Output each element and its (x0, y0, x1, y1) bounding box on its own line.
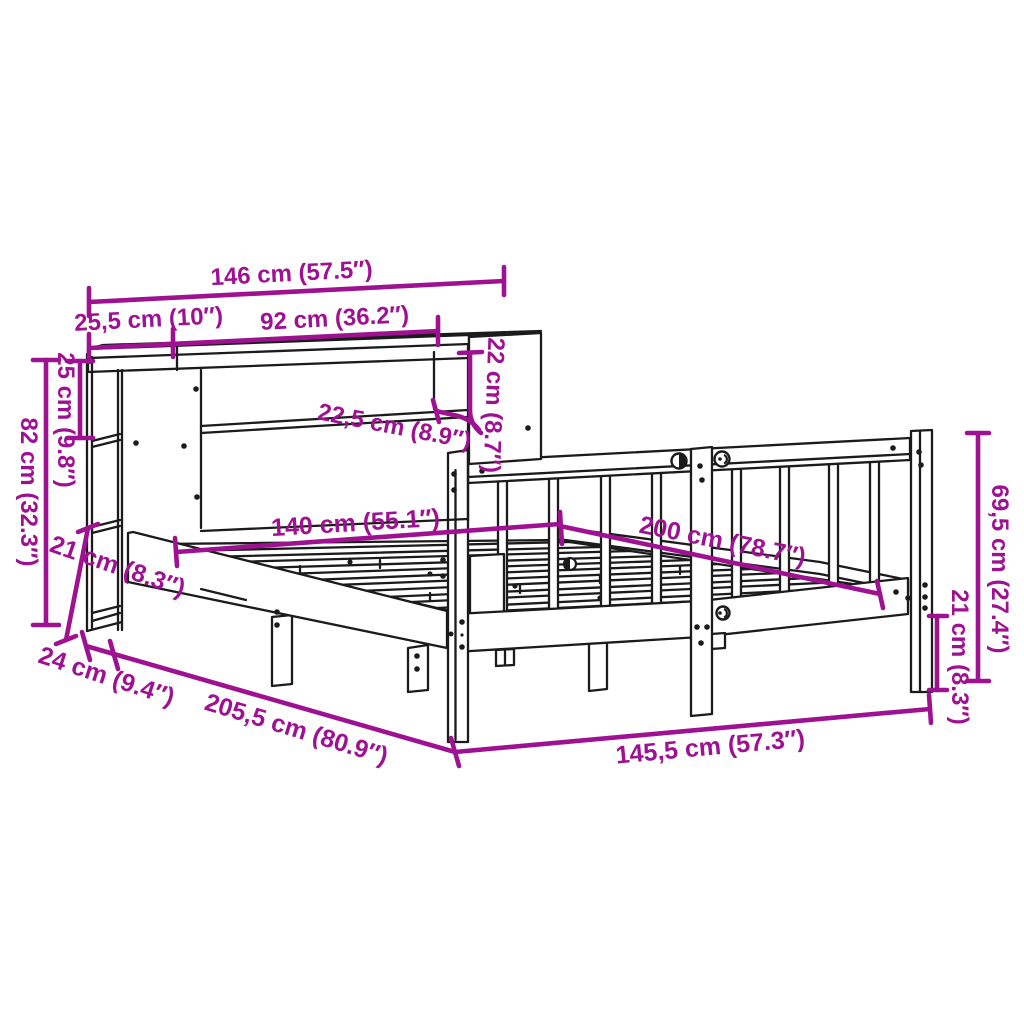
svg-text:25 cm (9.8″): 25 cm (9.8″) (52, 352, 79, 488)
svg-text:69,5 cm (27.4″): 69,5 cm (27.4″) (986, 485, 1013, 654)
svg-text:82 cm (32.3″): 82 cm (32.3″) (15, 418, 42, 567)
svg-text:21 cm (8.3″): 21 cm (8.3″) (946, 589, 973, 725)
svg-text:22 cm (8.7″): 22 cm (8.7″) (478, 337, 510, 473)
